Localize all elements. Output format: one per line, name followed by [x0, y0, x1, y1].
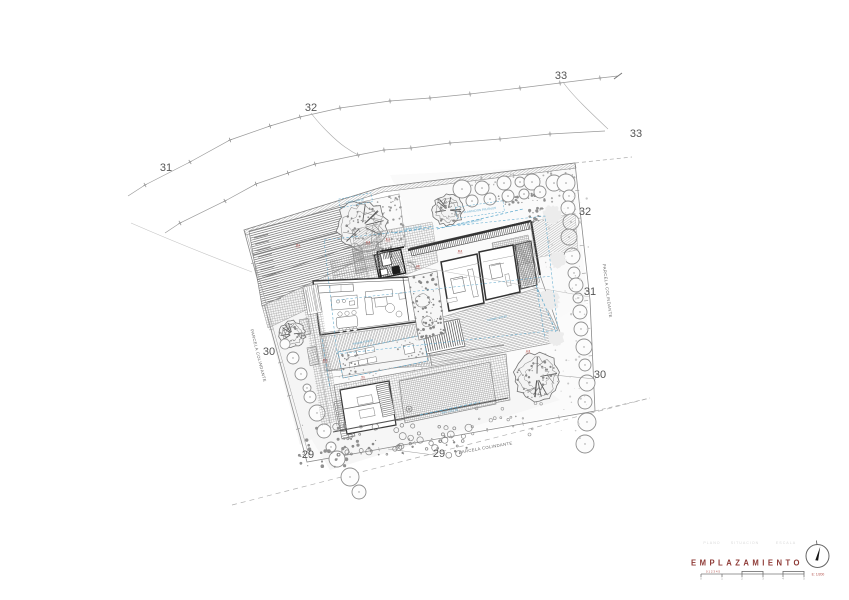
svg-text:ESCALA: ESCALA [776, 541, 796, 545]
svg-text:AC: AC [416, 264, 420, 268]
svg-text:32: 32 [305, 102, 317, 114]
svg-text:PLANO: PLANO [703, 541, 720, 545]
svg-text:A.5: A.5 [526, 349, 531, 353]
svg-text:33: 33 [555, 70, 567, 82]
svg-text:29: 29 [433, 448, 445, 460]
svg-text:P.1: P.1 [296, 243, 300, 247]
svg-text:33: 33 [630, 128, 642, 140]
svg-text:A.2: A.2 [366, 240, 371, 244]
svg-text:30: 30 [594, 369, 606, 381]
svg-text:D.2: D.2 [458, 249, 463, 253]
svg-text:SITUACION: SITUACION [731, 541, 760, 545]
svg-text:T.1: T.1 [361, 375, 365, 379]
svg-text:31: 31 [160, 162, 172, 174]
svg-text:EMPLAZAMIENTO: EMPLAZAMIENTO [691, 558, 803, 568]
svg-text:29: 29 [302, 449, 314, 461]
svg-text:32: 32 [579, 206, 591, 218]
svg-text:0 1 2 3 4 5: 0 1 2 3 4 5 [706, 570, 721, 574]
svg-text:P.3: P.3 [323, 358, 327, 362]
svg-text:E: 1/200: E: 1/200 [812, 573, 825, 577]
svg-text:31: 31 [584, 286, 596, 298]
svg-text:E.1: E.1 [386, 237, 390, 241]
svg-text:30: 30 [263, 346, 275, 358]
